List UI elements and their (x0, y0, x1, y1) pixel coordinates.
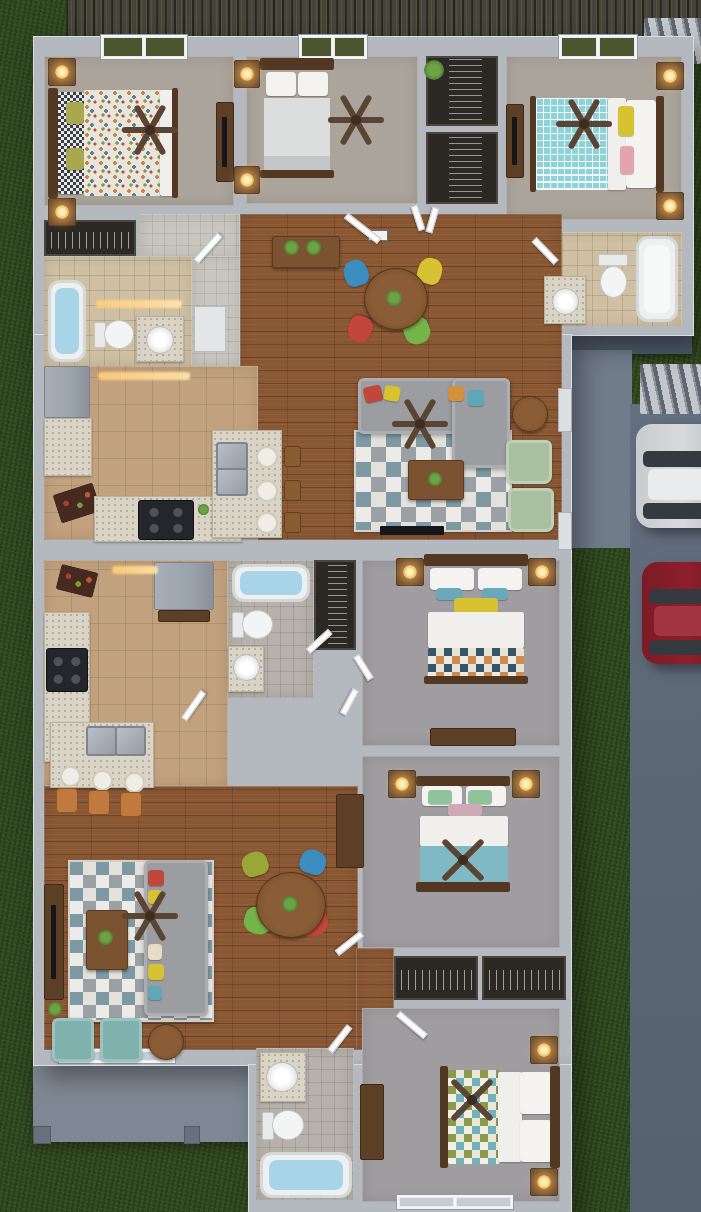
bed-pillow (298, 72, 328, 96)
table-lamp (535, 565, 549, 579)
bed-sheet-fold (498, 1072, 522, 1162)
side-table (512, 396, 548, 432)
window-pane (399, 1197, 454, 1207)
bed-headboard (656, 96, 664, 192)
dresser (430, 728, 516, 746)
rear-porch (33, 1062, 259, 1142)
accent-pillow-green (428, 790, 452, 804)
table-lamp (55, 65, 69, 79)
throw-pillow-cream (148, 944, 162, 960)
bed-pillow-olive (66, 148, 84, 170)
bed-pillow-yellow (618, 106, 634, 136)
red-sedan (642, 562, 701, 664)
table-lamp (519, 777, 533, 791)
place-setting (256, 512, 278, 534)
bar-stool (284, 480, 301, 501)
place-setting (256, 480, 278, 502)
window (558, 34, 638, 60)
rear-window (643, 503, 701, 519)
bar-stool (284, 446, 301, 467)
sink (552, 288, 579, 315)
bath-water (240, 571, 302, 595)
window-pane (145, 37, 185, 57)
bed-quilt (84, 90, 164, 196)
window-pane (301, 37, 332, 57)
hall-closet (426, 132, 498, 204)
cooktop (46, 648, 88, 692)
island-sink (216, 442, 248, 470)
nightstand (234, 166, 260, 194)
bar-stool (284, 512, 301, 533)
bed-sheet (420, 816, 508, 846)
bed-pillow (478, 568, 522, 590)
throw-pillow-teal (468, 390, 484, 406)
table-lamp (663, 199, 677, 213)
table-lamp (537, 1043, 551, 1057)
herb-pot (198, 504, 209, 515)
vanity-light (96, 300, 182, 308)
bed-headboard (424, 554, 528, 566)
table-lamp (537, 1175, 551, 1189)
nightstand (656, 192, 684, 220)
nightstand (528, 558, 556, 586)
potted-plant (284, 240, 299, 255)
floor-plan-scene (0, 0, 701, 1212)
sink (266, 1062, 298, 1092)
tv (512, 117, 517, 165)
toilet (600, 266, 627, 298)
nightstand (234, 60, 260, 88)
privacy-fence (66, 0, 701, 36)
dresser (360, 1084, 384, 1160)
centerpiece-plant (282, 896, 298, 912)
bar-stool (88, 790, 110, 815)
throw-pillow-red (148, 870, 164, 886)
bed-pillow (266, 72, 296, 96)
bath-water (644, 245, 670, 313)
nightstand (48, 198, 76, 226)
bed-pillow-pink (620, 146, 634, 174)
centerpiece-plant (428, 472, 442, 486)
bed-headboard (48, 88, 58, 198)
side-table (148, 1024, 184, 1060)
side-door-step (558, 512, 572, 550)
window-pane (103, 37, 143, 57)
bathtub (260, 1152, 352, 1198)
under-cabinet-light (112, 566, 158, 574)
toilet (272, 1110, 304, 1140)
table-lamp (55, 205, 69, 219)
bar-stool (120, 792, 142, 817)
porch-post (33, 1126, 51, 1144)
linen-cabinet (194, 306, 226, 352)
toilet (104, 320, 134, 349)
window (100, 34, 188, 60)
place-setting (256, 446, 278, 468)
car-roof (648, 469, 701, 500)
bed-blanket-teal (420, 846, 508, 884)
armchair-teal (52, 1018, 94, 1062)
bed-headboard (260, 58, 334, 70)
window-pane (599, 37, 635, 57)
tv-console (216, 102, 234, 182)
picket-fence-side (640, 364, 701, 414)
nightstand (656, 62, 684, 90)
porch-post (184, 1126, 200, 1144)
side-door-step (558, 388, 572, 432)
bedroom-closet (394, 956, 478, 1000)
island-sink (115, 726, 146, 756)
centerpiece-plant (386, 290, 402, 306)
hall-floor (140, 214, 240, 258)
bed-pillow (430, 568, 474, 590)
side-walkway (570, 350, 632, 548)
bed-footboard (424, 676, 528, 684)
armchair (506, 440, 552, 484)
tv (222, 117, 227, 167)
bedroom-6-window (396, 1194, 514, 1210)
bathtub (48, 280, 86, 362)
nightstand (396, 558, 424, 586)
bed-pillow (520, 1120, 552, 1162)
bed-sheet (428, 612, 524, 648)
bed-quilt-triangles (448, 1070, 500, 1164)
windshield (649, 589, 701, 604)
kitchen-counter (44, 418, 92, 476)
centerpiece-plant (98, 930, 113, 945)
bed-pillow-olive (66, 102, 84, 124)
potted-plant (306, 240, 321, 255)
table-lamp (403, 565, 417, 579)
tv (51, 905, 56, 979)
nightstand (530, 1168, 558, 1196)
nightstand (48, 58, 76, 86)
entry-console (272, 236, 340, 268)
toilet-tank (598, 254, 628, 266)
potted-plant (424, 60, 444, 80)
nightstand (388, 770, 416, 798)
throw-pillow-yellow (383, 385, 401, 403)
nightstand (512, 770, 540, 798)
sink (146, 326, 174, 354)
hutch (336, 794, 364, 868)
bar-stool (56, 788, 78, 813)
bed-headboard (416, 776, 510, 786)
refrigerator (44, 366, 90, 418)
window-pane (561, 37, 597, 57)
bathtub (232, 564, 310, 602)
rear-window (649, 640, 701, 655)
island-sink (216, 468, 248, 496)
car-roof (654, 606, 701, 637)
table-lamp (663, 69, 677, 83)
sink (233, 654, 260, 681)
bed-headboard (550, 1066, 560, 1168)
tv-bench (380, 526, 444, 535)
table-lamp (395, 777, 409, 791)
bathtub (636, 236, 678, 322)
bed-quilt-teal (536, 98, 610, 190)
tv-console (506, 104, 524, 178)
bath-water (55, 288, 79, 354)
tv-bench (44, 884, 64, 1000)
place-setting (92, 770, 113, 791)
window-pane (456, 1197, 511, 1207)
table-lamp (240, 173, 254, 187)
under-cabinet-light (98, 372, 190, 380)
toilet (242, 610, 273, 639)
throw-pillow-yellow (148, 890, 162, 904)
bed-footboard (260, 170, 334, 178)
bed-footboard (172, 88, 178, 198)
bath-water (269, 1160, 343, 1190)
accent-pillow-green (468, 790, 492, 804)
bed-quilt-triangles (428, 648, 524, 678)
window-pane (334, 37, 365, 57)
kitchen-cart (158, 610, 210, 622)
throw-pillow-orange (448, 386, 464, 401)
potted-plant (48, 1002, 62, 1016)
bed-footboard (440, 1066, 448, 1168)
place-setting (60, 766, 81, 787)
cooktop (138, 500, 194, 540)
bedroom-closet (482, 956, 566, 1000)
refrigerator (154, 562, 214, 610)
bed-pillow (520, 1072, 552, 1114)
throw-pillow-yellow (148, 964, 164, 980)
bed-sheet (264, 98, 330, 156)
armchair (508, 488, 554, 532)
nightstand (530, 1036, 558, 1064)
armchair-teal (100, 1018, 142, 1062)
island-sink (86, 726, 117, 756)
throw-pillow-teal (148, 986, 162, 1000)
white-suv (636, 424, 701, 528)
bed-bench (416, 882, 510, 892)
bed-blanket-fold (264, 156, 330, 170)
table-lamp (240, 67, 254, 81)
window (298, 34, 368, 60)
place-setting (124, 772, 145, 793)
windshield (643, 451, 701, 467)
